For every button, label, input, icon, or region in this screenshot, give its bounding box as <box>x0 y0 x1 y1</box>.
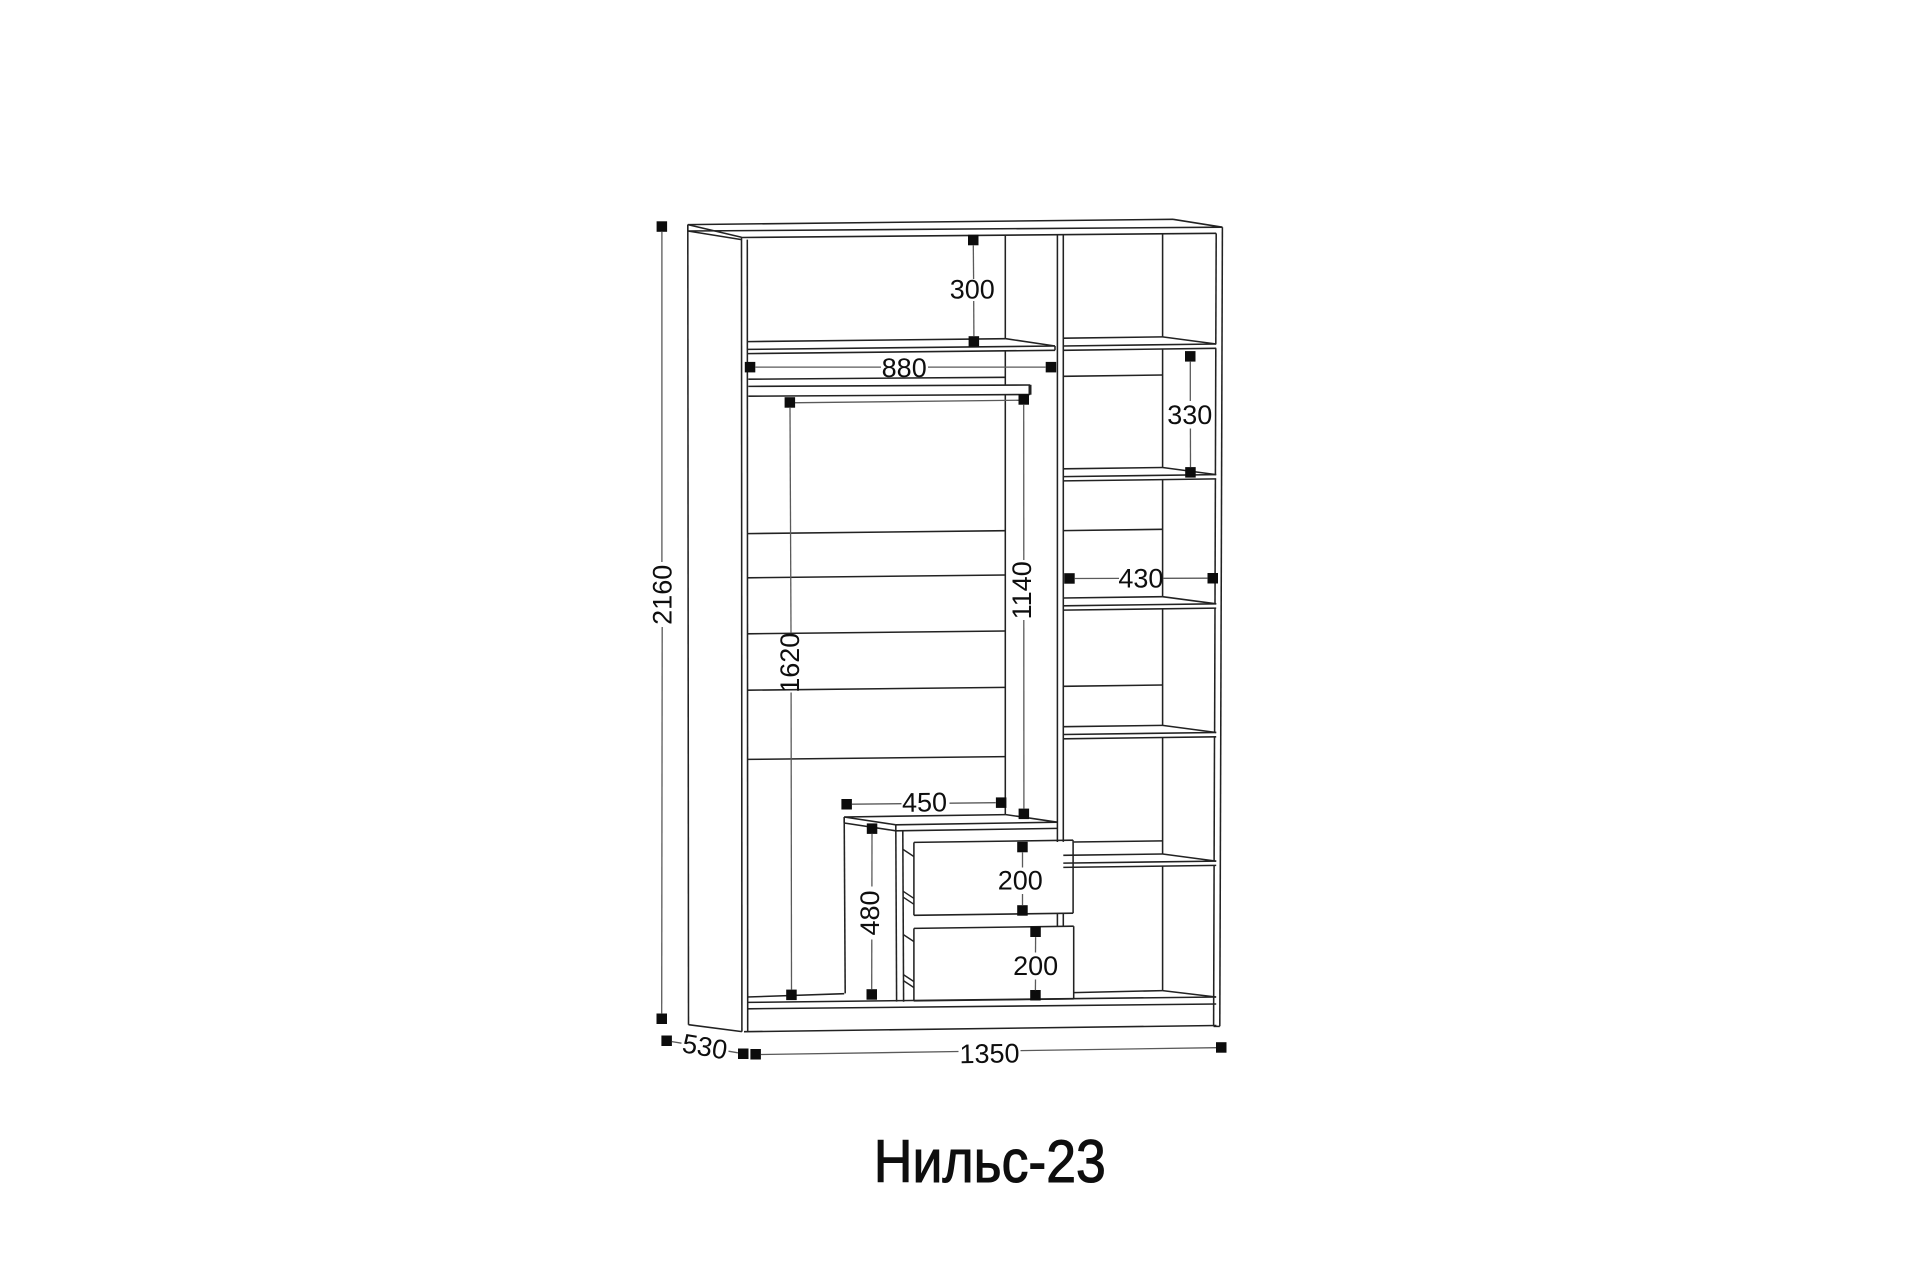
svg-text:430: 430 <box>1118 564 1163 594</box>
svg-text:450: 450 <box>902 787 947 818</box>
svg-text:1350: 1350 <box>959 1038 1020 1069</box>
svg-text:480: 480 <box>855 890 885 935</box>
svg-text:Нильс-23: Нильс-23 <box>874 1128 1106 1195</box>
svg-text:2160: 2160 <box>647 565 677 625</box>
svg-text:1140: 1140 <box>1007 561 1037 619</box>
svg-text:880: 880 <box>882 353 927 383</box>
svg-text:200: 200 <box>1013 951 1058 981</box>
svg-text:1620: 1620 <box>775 633 805 693</box>
svg-text:300: 300 <box>950 275 995 305</box>
svg-text:330: 330 <box>1167 400 1212 430</box>
svg-text:200: 200 <box>998 866 1043 896</box>
